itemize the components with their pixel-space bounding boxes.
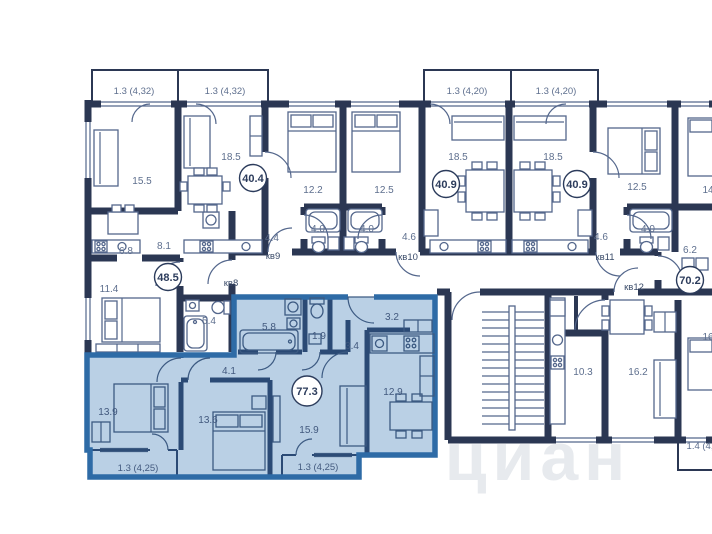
toilet bbox=[312, 237, 325, 253]
flat-number-label: кв8 bbox=[224, 278, 239, 289]
room-area-label: 11.4 bbox=[100, 284, 119, 295]
room-area-label: 12.2 bbox=[303, 185, 323, 196]
sofa bbox=[184, 116, 210, 168]
flat-number-label: кв11 bbox=[595, 252, 614, 263]
badge-value: 77.3 bbox=[296, 386, 317, 398]
flat-number-label: кв9 bbox=[266, 251, 281, 262]
room-area-label: 8.1 bbox=[157, 241, 171, 252]
toilet bbox=[640, 237, 653, 253]
room-area-label: 13.6 bbox=[198, 415, 218, 426]
toilet bbox=[212, 301, 230, 314]
apartment-total-area-badge: 40.4 bbox=[240, 165, 267, 192]
room-area-label: 5.8 bbox=[262, 322, 276, 333]
bed bbox=[102, 298, 160, 342]
badge-value: 40.4 bbox=[242, 173, 264, 185]
dining-table bbox=[602, 300, 652, 334]
room-area-label: 3.4 bbox=[345, 341, 359, 352]
flat-number-label: кв10 bbox=[398, 252, 418, 263]
stair-rail bbox=[509, 306, 515, 430]
sofa bbox=[94, 130, 118, 186]
room-area-label: 13.9 bbox=[98, 407, 118, 418]
balcony-area-label: 1.3 (4,25) bbox=[298, 462, 339, 473]
room-area-label: 15.5 bbox=[132, 176, 152, 187]
balcony-area-label: 1.3 (4,20) bbox=[447, 86, 488, 97]
room-area-label: 6.8 bbox=[119, 246, 133, 257]
room-area-label: 4.0 bbox=[311, 224, 325, 235]
apartment-total-area-badge: 40.9 bbox=[564, 171, 591, 198]
room-area-label: 4.6 bbox=[594, 232, 608, 243]
toilet bbox=[355, 237, 368, 253]
balcony-area-label: 1.3 (4,25) bbox=[118, 463, 159, 474]
balcony-area-label: 1.4 (4, bbox=[687, 441, 712, 452]
sink bbox=[658, 237, 669, 250]
washing-machine bbox=[203, 212, 219, 228]
sink bbox=[344, 237, 354, 250]
bed bbox=[608, 128, 660, 174]
badge-value: 70.2 bbox=[679, 275, 700, 287]
room-area-label: 12.9 bbox=[383, 387, 403, 398]
room-area-label: 18.5 bbox=[543, 152, 563, 163]
floor-plan: циан bbox=[0, 0, 712, 534]
room-area-label: 4.4 bbox=[265, 233, 279, 244]
sofa bbox=[654, 360, 676, 418]
room-area-label: 12.5 bbox=[627, 182, 647, 193]
kitchen-counter bbox=[184, 240, 262, 253]
balcony-area-label: 1.3 (4,20) bbox=[536, 86, 577, 97]
room-area-label: 15.9 bbox=[299, 425, 319, 436]
floor-plan-page: циан bbox=[0, 0, 712, 534]
balcony-area-label: 1.3 (4,32) bbox=[205, 86, 246, 97]
balcony-area-label: 1.3 (4,32) bbox=[114, 86, 155, 97]
apartment-total-area-badge: 70.2 bbox=[677, 267, 704, 294]
room-area-label: 6.2 bbox=[683, 245, 697, 256]
sink bbox=[186, 300, 199, 311]
badge-value: 40.9 bbox=[435, 179, 456, 191]
room-area-label: 18.5 bbox=[221, 152, 241, 163]
room-area-label: 4.1 bbox=[222, 366, 236, 377]
apartment-total-area-badge: 40.9 bbox=[433, 171, 460, 198]
closet bbox=[654, 312, 676, 332]
bed bbox=[352, 112, 400, 172]
bed bbox=[688, 118, 712, 176]
room-area-label: 4.0 bbox=[360, 224, 374, 235]
badge-value: 40.9 bbox=[566, 179, 587, 191]
flat-number-label: кв12 bbox=[624, 282, 644, 293]
room-area-label: 16 bbox=[702, 332, 712, 343]
bed bbox=[288, 112, 336, 172]
room-area-label: 5.4 bbox=[202, 316, 216, 327]
selected-apartment-total-area-badge[interactable]: 77.3 bbox=[292, 376, 322, 406]
room-area-label: 4.0 bbox=[641, 224, 655, 235]
apartment-total-area-badge: 48.5 bbox=[155, 264, 182, 291]
room-area-label: 4.6 bbox=[402, 232, 416, 243]
room-area-label: 14 bbox=[702, 185, 712, 196]
wardrobe bbox=[250, 116, 262, 156]
room-area-label: 16.2 bbox=[628, 367, 648, 378]
sofa bbox=[452, 116, 504, 140]
room-area-label: 18.5 bbox=[448, 152, 468, 163]
wardrobe bbox=[96, 344, 160, 352]
room-area-label: 10.3 bbox=[573, 367, 593, 378]
badge-value: 48.5 bbox=[157, 272, 178, 284]
room-area-label: 12.5 bbox=[374, 185, 394, 196]
bed bbox=[688, 338, 712, 390]
room-area-label: 1.9 bbox=[312, 331, 326, 342]
room-area-label: 3.2 bbox=[385, 312, 399, 323]
kitchen-counter bbox=[550, 298, 565, 424]
sofa bbox=[514, 116, 566, 140]
sink bbox=[328, 237, 339, 250]
